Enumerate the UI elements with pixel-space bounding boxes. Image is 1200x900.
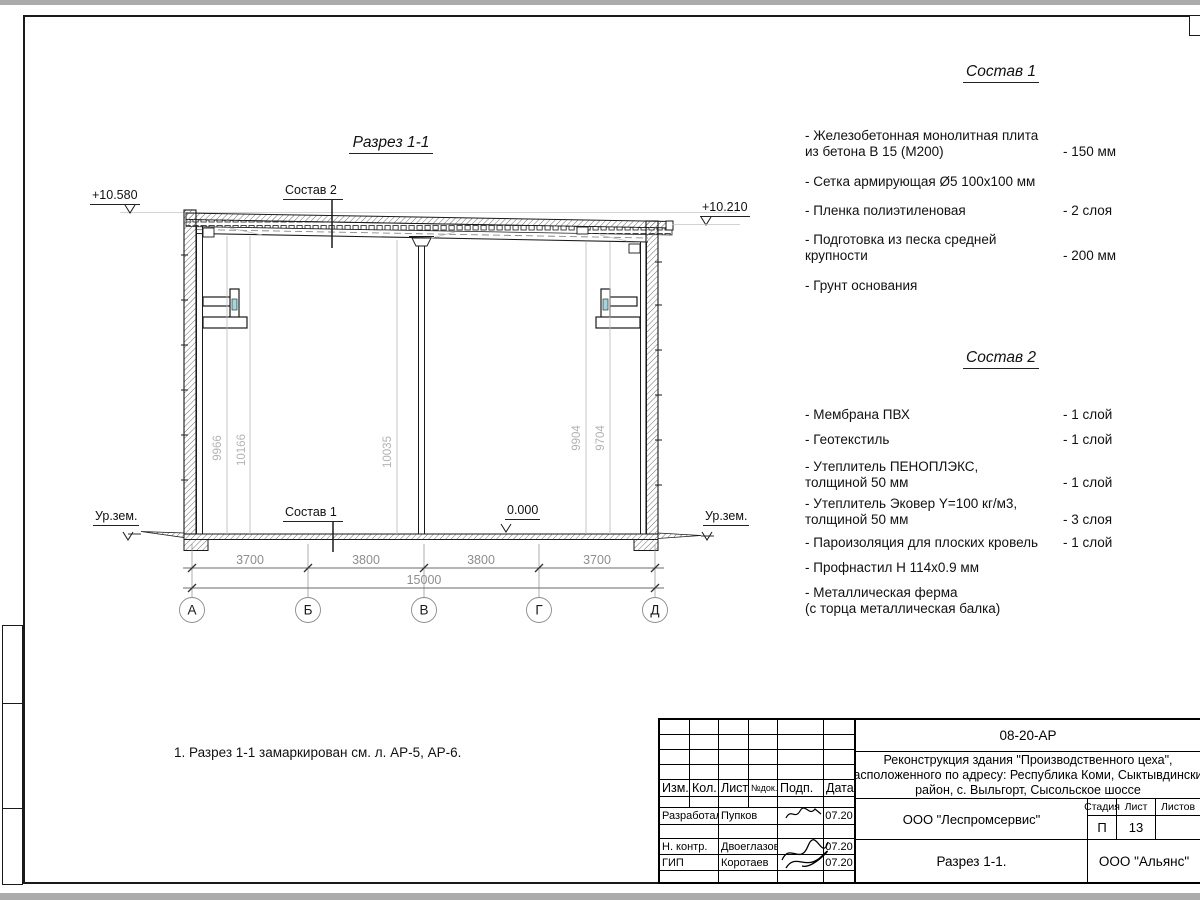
bracket-left xyxy=(203,289,247,328)
axis-b: Б xyxy=(304,603,313,618)
vdim-10166: 10166 xyxy=(236,434,248,466)
elevation-zero: 0.000 xyxy=(505,504,540,517)
hdim-3: 3800 xyxy=(467,553,495,567)
section-drawing: 9966 10166 10035 9904 9704 xyxy=(0,0,1200,900)
hdim-2: 3800 xyxy=(352,553,380,567)
axis-bubbles: А Б В Г Д xyxy=(180,598,668,623)
axis-d: Д xyxy=(650,603,659,618)
wall-axis-d xyxy=(629,221,662,534)
column-axis-v xyxy=(409,237,434,535)
bracket-right xyxy=(596,289,640,328)
vdim-9704: 9704 xyxy=(595,425,607,451)
wall-axis-a xyxy=(181,210,214,534)
ground-level-right: Ур.зем. xyxy=(703,510,749,523)
dimension-chain: 3700 3800 3800 3700 15000 xyxy=(183,544,664,598)
foundation-right xyxy=(634,540,658,551)
foundation-left xyxy=(184,540,208,551)
axis-v: В xyxy=(419,603,428,618)
vdim-10035: 10035 xyxy=(382,436,394,468)
sostav2-label: Состав 2 xyxy=(283,184,343,197)
hdim-4: 3700 xyxy=(583,553,611,567)
vdim-9966: 9966 xyxy=(212,435,224,461)
hdim-1: 3700 xyxy=(236,553,264,567)
axis-a: А xyxy=(187,603,196,618)
axis-g: Г xyxy=(535,603,543,618)
vdim-9904: 9904 xyxy=(571,425,583,451)
drawing-sheet: 9966 10166 10035 9904 9704 xyxy=(0,0,1200,900)
signature-2 xyxy=(778,836,832,874)
roof-edge-cap xyxy=(666,221,673,230)
elevation-top-right: +10.210 xyxy=(700,201,750,214)
floor-slab xyxy=(128,532,714,551)
ground-level-left: Ур.зем. xyxy=(93,510,139,523)
elevation-top-left: +10.580 xyxy=(90,189,140,202)
roof-detail-box xyxy=(577,227,588,234)
sostav1-label: Состав 1 xyxy=(283,506,343,519)
signature-1 xyxy=(783,805,825,823)
hdim-total: 15000 xyxy=(407,573,442,587)
